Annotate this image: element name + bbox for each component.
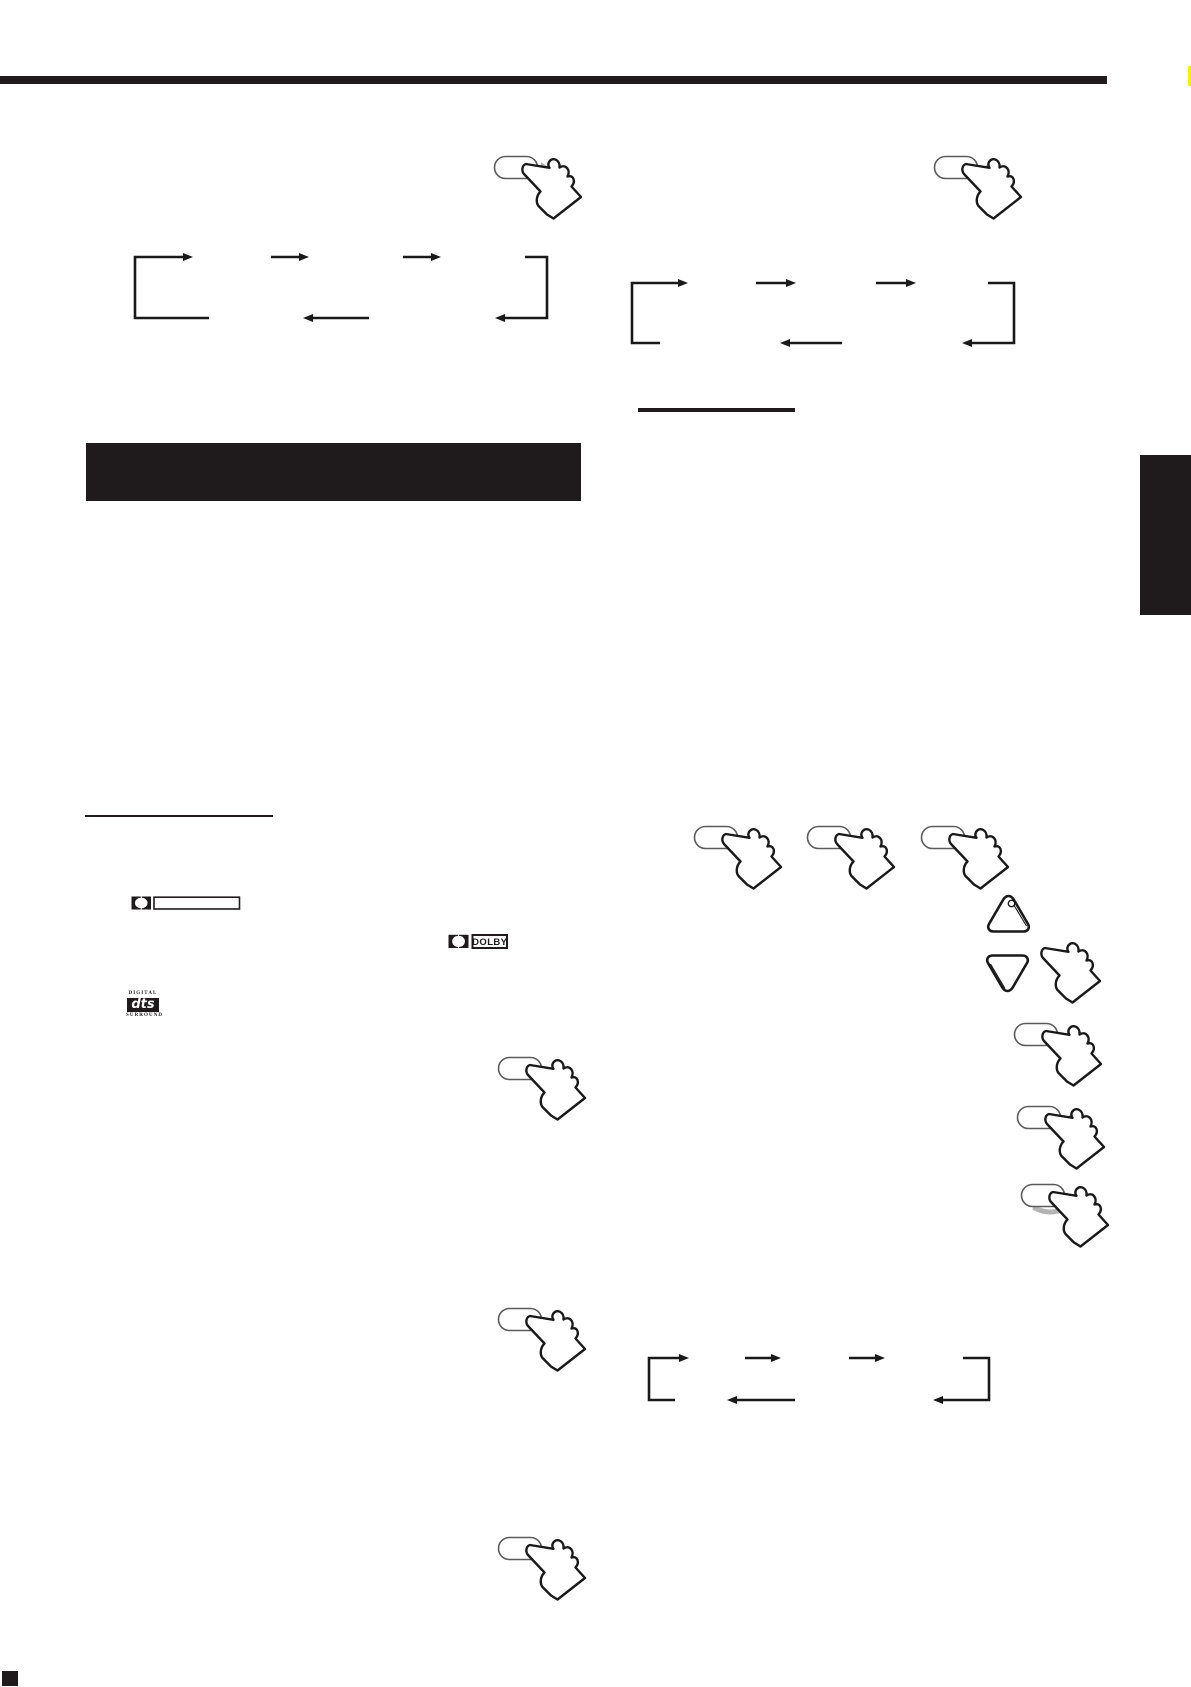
right-column-heading-underline (638, 408, 795, 412)
press-hand-cursor (1038, 938, 1108, 1009)
section-side-tab (1140, 455, 1191, 615)
manual-page: DOLBY DIGITAL dts SURROUND (0, 0, 1191, 1687)
press-hand-left-2 (497, 1302, 593, 1377)
press-hand-row-1 (693, 820, 789, 895)
dolby-digital-logo (131, 896, 241, 911)
cycle-diagram-bottom (645, 1352, 993, 1408)
note-marker-square (2, 1671, 18, 1686)
press-hand-top-left (493, 150, 589, 225)
dolby-boxed-logo: DOLBY (448, 934, 508, 949)
cycle-diagram-right-top (628, 276, 1018, 350)
section-title-bar (86, 443, 581, 501)
press-hand-row-2 (806, 820, 902, 895)
up-triangle-button (985, 893, 1032, 934)
dts-logo-surround-text: SURROUND (126, 1013, 160, 1019)
dts-logo: DIGITAL dts SURROUND (126, 991, 160, 1019)
press-hand-left-3 (497, 1531, 593, 1606)
cycle-diagram-left-top (129, 250, 553, 326)
press-hand-top-right (933, 150, 1029, 225)
dolby-digital-empty-box (154, 897, 240, 909)
press-hand-left-1 (497, 1051, 593, 1126)
press-hand-right-2 (1016, 1100, 1112, 1175)
top-rule (0, 76, 1107, 84)
down-triangle-button (984, 954, 1031, 994)
press-hand-right-3 (1020, 1178, 1116, 1253)
dts-logo-dts-text: dts (127, 998, 159, 1012)
press-hand-right-1 (1013, 1017, 1109, 1092)
press-hand-row-3 (920, 820, 1016, 895)
left-column-heading-underline (85, 815, 273, 817)
dolby-logo-text: DOLBY (472, 937, 508, 948)
